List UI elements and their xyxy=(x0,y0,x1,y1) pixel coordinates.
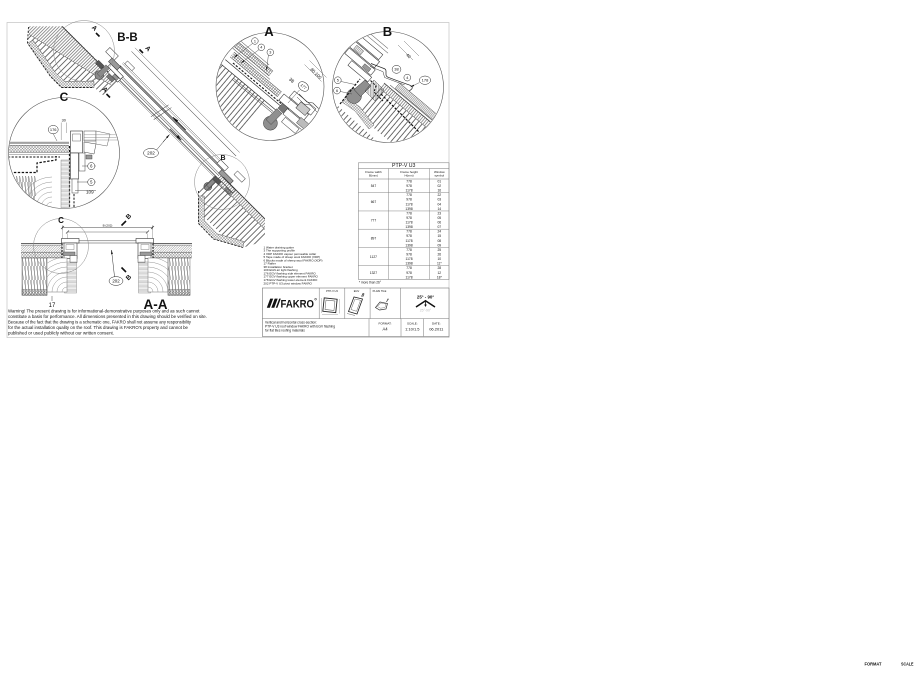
svg-text:1178: 1178 xyxy=(406,202,413,206)
svg-text:1:10/1.5: 1:10/1.5 xyxy=(405,327,420,332)
svg-text:1327: 1327 xyxy=(370,271,378,275)
svg-text:25° - 90°: 25° - 90° xyxy=(417,295,434,300)
svg-text:1178: 1178 xyxy=(406,239,413,243)
svg-text:778: 778 xyxy=(406,230,412,234)
svg-text:667: 667 xyxy=(371,200,377,204)
svg-text:Because of the fact that the d: Because of the fact that the drawing is … xyxy=(8,319,192,324)
svg-text:978: 978 xyxy=(406,184,412,188)
svg-text:1398: 1398 xyxy=(405,262,413,266)
svg-text:PTP-V U3: PTP-V U3 xyxy=(326,289,338,293)
svg-text:FORMAT:: FORMAT: xyxy=(379,322,392,326)
svg-text:Warning! The present drawing i: Warning! The present drawing is for info… xyxy=(8,308,200,313)
svg-text:178: 178 xyxy=(422,78,429,83)
svg-text:6: 6 xyxy=(336,89,338,93)
svg-text:11*: 11* xyxy=(437,262,442,266)
svg-text:B-B: B-B xyxy=(117,32,137,44)
svg-text:EGV: EGV xyxy=(354,289,360,293)
svg-text:202: 202 xyxy=(112,279,120,284)
svg-text:202 PTP-V U3 pivot window FAKR: 202 PTP-V U3 pivot window FAKRO xyxy=(264,281,313,285)
svg-text:06: 06 xyxy=(437,221,441,225)
svg-text:26: 26 xyxy=(437,253,441,257)
svg-text:22: 22 xyxy=(437,193,441,197)
svg-text:777: 777 xyxy=(371,218,377,222)
svg-text:202: 202 xyxy=(147,151,155,156)
svg-text:4: 4 xyxy=(260,46,262,50)
svg-text:1178: 1178 xyxy=(406,221,413,225)
svg-text:1398: 1398 xyxy=(405,243,413,247)
svg-text:04: 04 xyxy=(437,202,441,206)
svg-text:SCALE:: SCALE: xyxy=(407,322,418,326)
svg-text:1398: 1398 xyxy=(405,225,413,229)
svg-text:A: A xyxy=(264,24,274,39)
svg-text:978: 978 xyxy=(406,271,412,275)
svg-text:18*: 18* xyxy=(437,275,443,279)
svg-text:38: 38 xyxy=(394,67,399,72)
svg-text:C: C xyxy=(58,216,64,225)
svg-text:24: 24 xyxy=(437,230,441,234)
svg-text:30: 30 xyxy=(62,118,66,122)
svg-text:PTP-V U3: PTP-V U3 xyxy=(392,163,415,169)
svg-text:1127: 1127 xyxy=(370,255,377,259)
svg-text:06.2011: 06.2011 xyxy=(429,327,444,332)
svg-text:28: 28 xyxy=(437,266,441,270)
svg-text:1178: 1178 xyxy=(406,189,413,193)
svg-text:10: 10 xyxy=(437,257,441,261)
svg-text:778: 778 xyxy=(406,211,412,215)
svg-text:07: 07 xyxy=(437,225,441,229)
svg-text:PLAIN TILE: PLAIN TILE xyxy=(373,289,387,293)
svg-text:09: 09 xyxy=(437,243,441,247)
svg-text:778: 778 xyxy=(406,193,412,197)
svg-text:25: 25 xyxy=(437,248,441,252)
svg-text:for flat tiles roofing materia: for flat tiles roofing materials xyxy=(265,329,305,333)
svg-text:published or used publicly wi: published or used publicly without our w… xyxy=(8,330,114,335)
svg-text:B(mm): B(mm) xyxy=(369,174,378,178)
svg-text:14: 14 xyxy=(437,207,441,211)
svg-text:01: 01 xyxy=(437,179,441,183)
svg-text:B (202): B (202) xyxy=(103,223,113,227)
svg-text:05: 05 xyxy=(437,216,441,220)
svg-text:for the actual installation qu: for the actual installation quality on t… xyxy=(8,325,188,330)
svg-text:constitute a basis for perform: constitute a basis for performance. All … xyxy=(8,314,207,319)
svg-text:978: 978 xyxy=(406,234,412,238)
svg-text:978: 978 xyxy=(406,216,412,220)
svg-text:08: 08 xyxy=(437,239,441,243)
svg-text:176: 176 xyxy=(50,127,57,132)
svg-text:778: 778 xyxy=(406,266,412,270)
svg-text:1: 1 xyxy=(254,39,256,43)
svg-text:1398: 1398 xyxy=(405,207,413,211)
svg-text:B: B xyxy=(383,24,392,39)
svg-text:5: 5 xyxy=(337,79,339,83)
svg-text:symbol: symbol xyxy=(435,174,445,178)
svg-text:3: 3 xyxy=(269,51,271,55)
svg-text:DATE:: DATE: xyxy=(432,322,441,326)
svg-text:1178: 1178 xyxy=(406,257,413,261)
svg-text:16: 16 xyxy=(437,189,441,193)
svg-text:A4: A4 xyxy=(382,327,388,332)
svg-text:15: 15 xyxy=(437,234,441,238)
svg-text:778: 778 xyxy=(406,248,412,252)
svg-text:H(mm): H(mm) xyxy=(404,174,413,178)
svg-text:897: 897 xyxy=(371,237,377,241)
svg-text:25°-90°: 25°-90° xyxy=(420,309,432,313)
svg-text:978: 978 xyxy=(406,253,412,257)
svg-text:778: 778 xyxy=(406,179,412,183)
svg-text:02: 02 xyxy=(437,184,441,188)
svg-text:12: 12 xyxy=(437,271,441,275)
svg-text:FORMAT: FORMAT xyxy=(865,661,882,666)
svg-text:4: 4 xyxy=(406,76,408,80)
svg-text:C: C xyxy=(60,90,69,104)
svg-text:* more than 26°: * more than 26° xyxy=(359,281,382,285)
svg-text:SCALE: SCALE xyxy=(901,661,914,666)
svg-text:23: 23 xyxy=(437,211,441,215)
svg-text:978: 978 xyxy=(406,198,412,202)
svg-text:03: 03 xyxy=(437,198,441,202)
svg-text:1178: 1178 xyxy=(406,275,413,279)
svg-text:547: 547 xyxy=(371,184,377,188)
svg-text:109: 109 xyxy=(86,189,94,194)
svg-text:B: B xyxy=(220,155,225,162)
svg-text:FAKRO: FAKRO xyxy=(281,299,315,311)
